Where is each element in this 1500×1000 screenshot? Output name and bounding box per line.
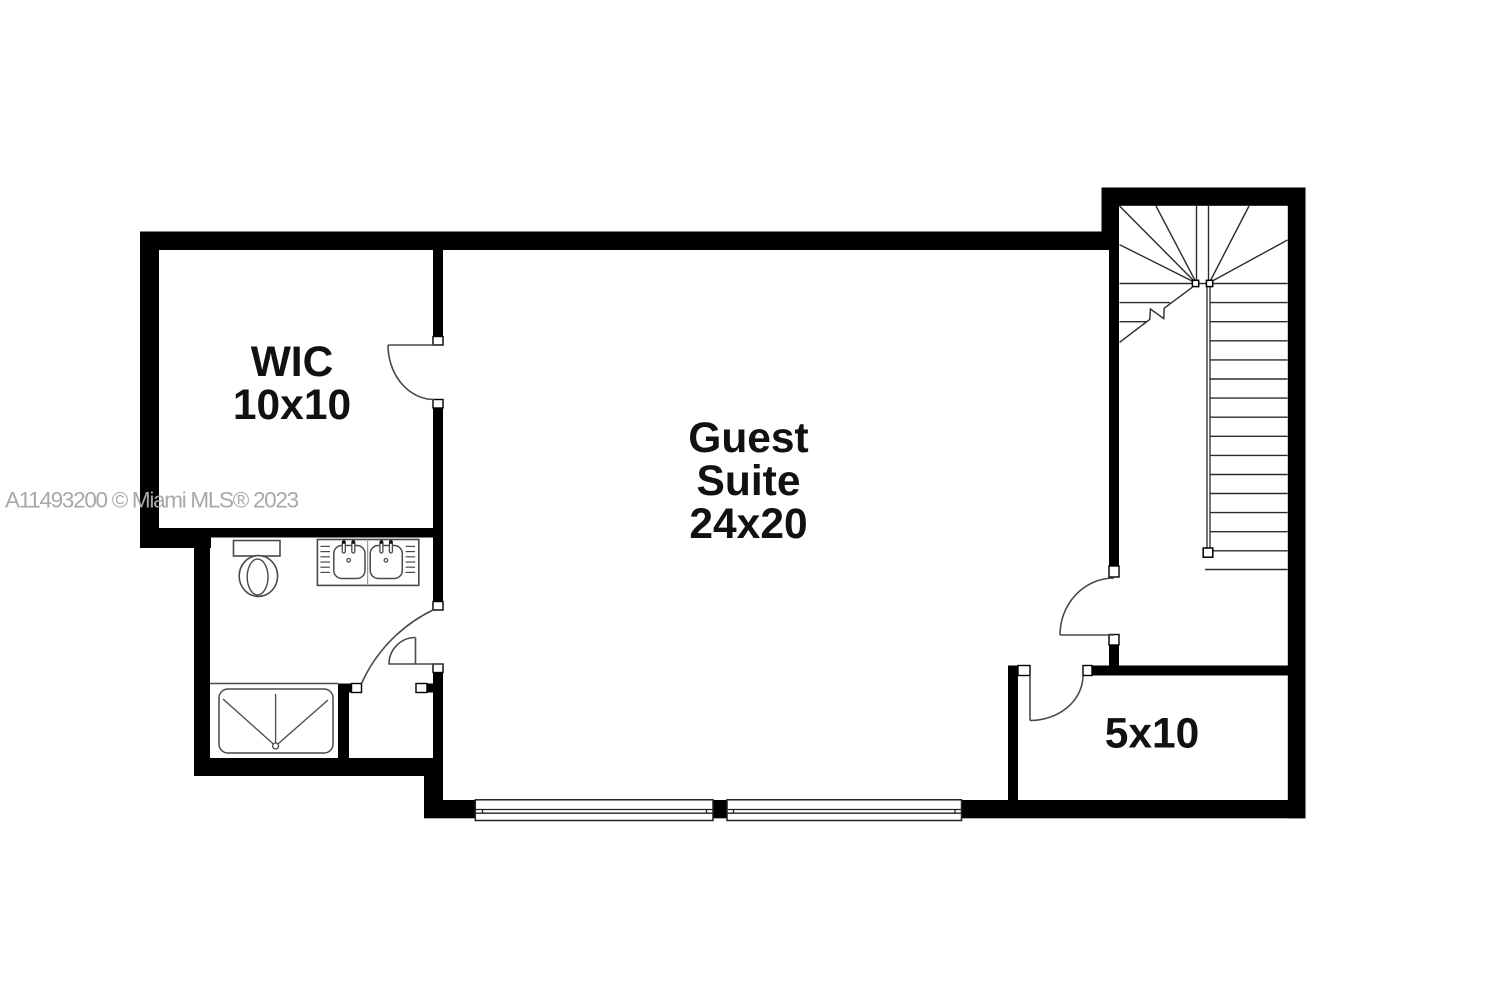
svg-text:Suite: Suite [697, 458, 801, 505]
svg-text:10x10: 10x10 [233, 382, 351, 429]
svg-text:5x10: 5x10 [1105, 711, 1200, 758]
svg-text:Guest: Guest [688, 415, 808, 462]
svg-text:WIC: WIC [251, 339, 334, 386]
svg-text:24x20: 24x20 [689, 501, 807, 548]
svg-text:A11493200 © Miami MLS® 2023: A11493200 © Miami MLS® 2023 [5, 487, 299, 512]
